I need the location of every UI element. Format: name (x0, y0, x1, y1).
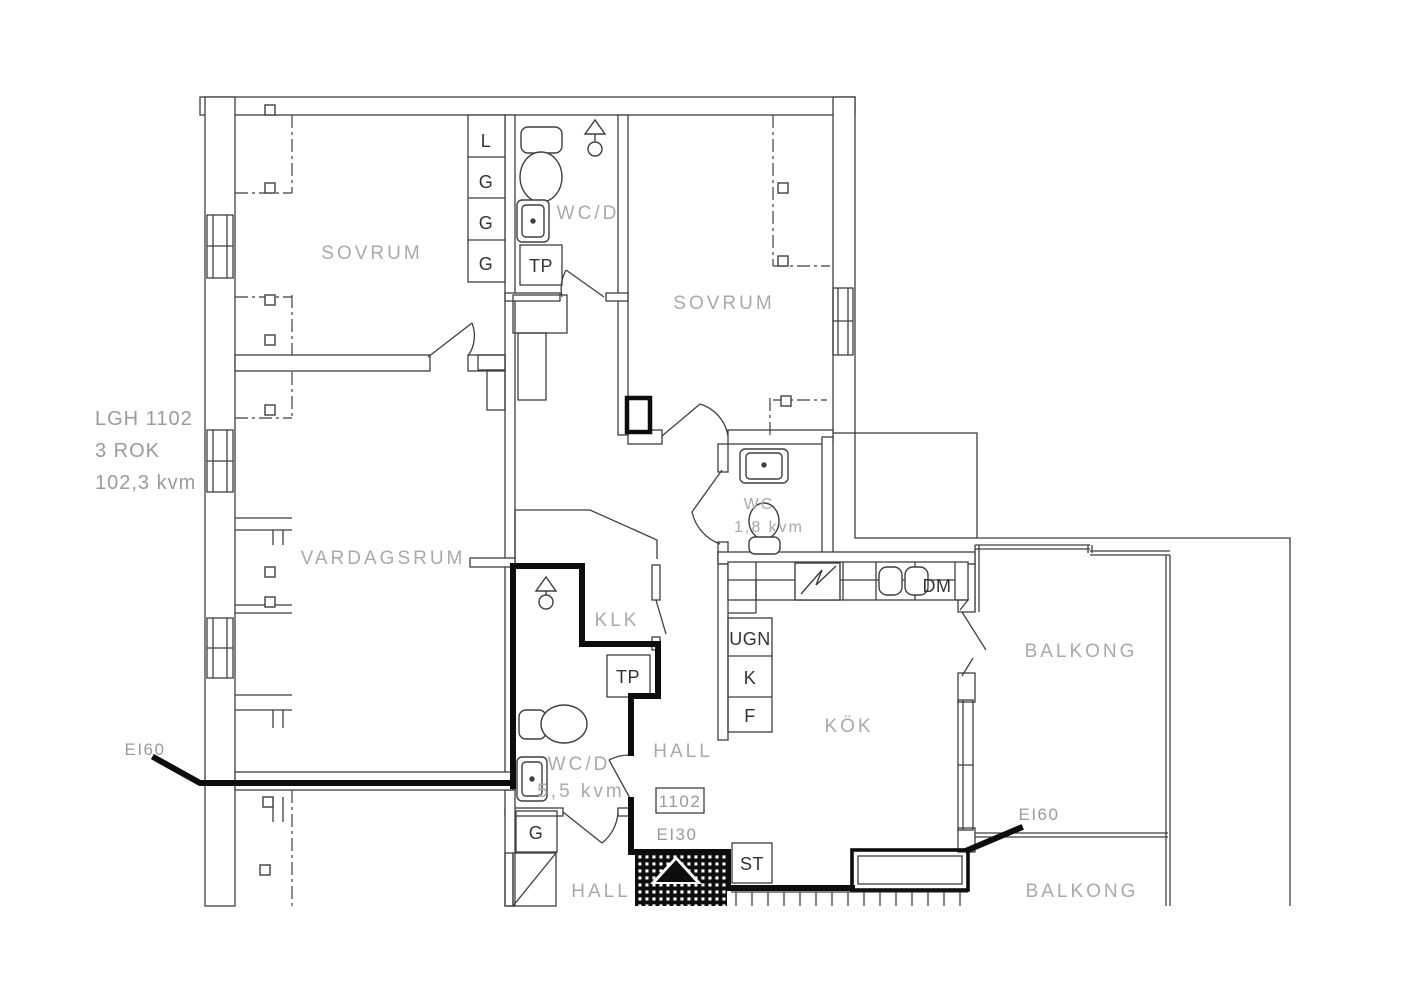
duct-4 (487, 370, 505, 410)
kitchen-sink-left (879, 567, 902, 595)
duct-2 (518, 333, 546, 400)
shaft-sovrum2 (627, 398, 650, 432)
sink-mid-drain (530, 777, 534, 781)
apartment-number-badge: 1102 (659, 792, 702, 811)
vent-top-icon (585, 120, 605, 141)
label-tp-mid: TP (616, 667, 640, 687)
wall-sovrum2-west (618, 115, 628, 435)
label-st: ST (740, 854, 764, 874)
site-boundary (977, 538, 1290, 906)
door-wc-small (692, 470, 722, 544)
stub-3 (235, 695, 292, 728)
shelf-plank (470, 558, 515, 567)
label-g-low: G (529, 823, 544, 843)
balcony-rails (975, 545, 1170, 906)
closet-label-g2: G (479, 213, 494, 233)
floor-plan-drawing: LGH 1102 3 ROK 102,3 kvm SOVRUM WC/D SOV… (0, 0, 1403, 992)
apartment-id-label: LGH 1102 (95, 408, 193, 430)
vent-mid-circle (539, 595, 553, 609)
room-label-vardagsrum: VARDAGSRUM (301, 548, 466, 569)
room-label-wc-small: WC (744, 496, 775, 513)
wall-kitchen-east-b (958, 673, 975, 702)
stub-1 (235, 518, 292, 545)
wall-top (200, 97, 855, 115)
room-label-hall-mid: HALL (653, 741, 713, 762)
label-ugn: UGN (729, 629, 771, 649)
apartment-area-label: 102,3 kvm (95, 472, 196, 494)
wardrobe-diagonal (513, 853, 556, 906)
door-sovrum1 (428, 323, 474, 357)
stub-4 (273, 797, 283, 822)
closet-label-g3: G (479, 254, 494, 274)
closet-label-l: L (481, 131, 492, 151)
klk-sloped-closet (515, 510, 657, 559)
toilet-top-bowl (520, 152, 562, 202)
room-label-wcd-top: WC/D (557, 203, 620, 224)
label-k: K (744, 668, 757, 688)
door-balcony (962, 612, 986, 676)
niche-outline (855, 433, 977, 538)
room-label-wcd-mid: WC/D (548, 754, 611, 775)
label-ei60-right: EI60 (1019, 805, 1060, 824)
fire-walls (155, 566, 1020, 906)
label-tp-top: TP (529, 256, 553, 276)
wall-klk-east-a (652, 565, 660, 600)
door-sovrum2 (662, 404, 728, 436)
window-kitchen (958, 700, 973, 830)
wall-wc-west-a (718, 444, 728, 472)
room-label-wc-small-area: 1,8 kvm (734, 519, 804, 536)
door-wcd-top (561, 270, 604, 297)
label-ei30: EI30 (657, 825, 698, 844)
apartment-rok-label: 3 ROK (95, 440, 160, 462)
kitchen-south-window-inner (858, 856, 962, 884)
wall-kitchen-hall (718, 564, 728, 740)
vent-mid-icon (536, 577, 556, 597)
room-label-sovrum1: SOVRUM (321, 243, 422, 264)
stub-2 (235, 605, 292, 613)
wall-wcd-top-south-b (606, 293, 628, 301)
closet-label-g1: G (479, 172, 494, 192)
sink-wc-small-drain (762, 463, 766, 467)
floor-plan-page: LGH 1102 3 ROK 102,3 kvm SOVRUM WC/D SOV… (0, 0, 1403, 992)
railing-ticks (731, 892, 968, 906)
sink-top-drain (531, 219, 535, 223)
wall-sovrum1-south (235, 355, 430, 371)
door-wcd-mid (563, 812, 618, 843)
room-label-sovrum2: SOVRUM (673, 293, 774, 314)
room-label-klk: KLK (595, 610, 640, 631)
toilet-wc-small-cistern (749, 537, 780, 554)
vent-top-circle (588, 142, 602, 156)
room-label-kok: KÖK (824, 716, 873, 737)
door-klk (656, 600, 666, 634)
wall-stub (468, 355, 505, 371)
label-f: F (744, 706, 756, 726)
label-ei60-left: EI60 (125, 740, 166, 759)
ei60-right-wall (968, 828, 1020, 850)
toilet-mid-bowl (541, 705, 587, 743)
wall-wc-east (822, 437, 833, 561)
room-label-balkong-top: BALKONG (1025, 641, 1138, 662)
room-label-wcd-mid-area: 5,5 kvm (537, 781, 625, 802)
toilet-top-cistern (521, 127, 562, 153)
wall-right-top (833, 97, 855, 433)
room-label-balkong-bottom: BALKONG (1026, 881, 1139, 902)
label-dm: DM (923, 576, 952, 596)
wall-sovrum2-south-b (728, 430, 833, 444)
room-label-hall-low: HALL (571, 881, 631, 902)
